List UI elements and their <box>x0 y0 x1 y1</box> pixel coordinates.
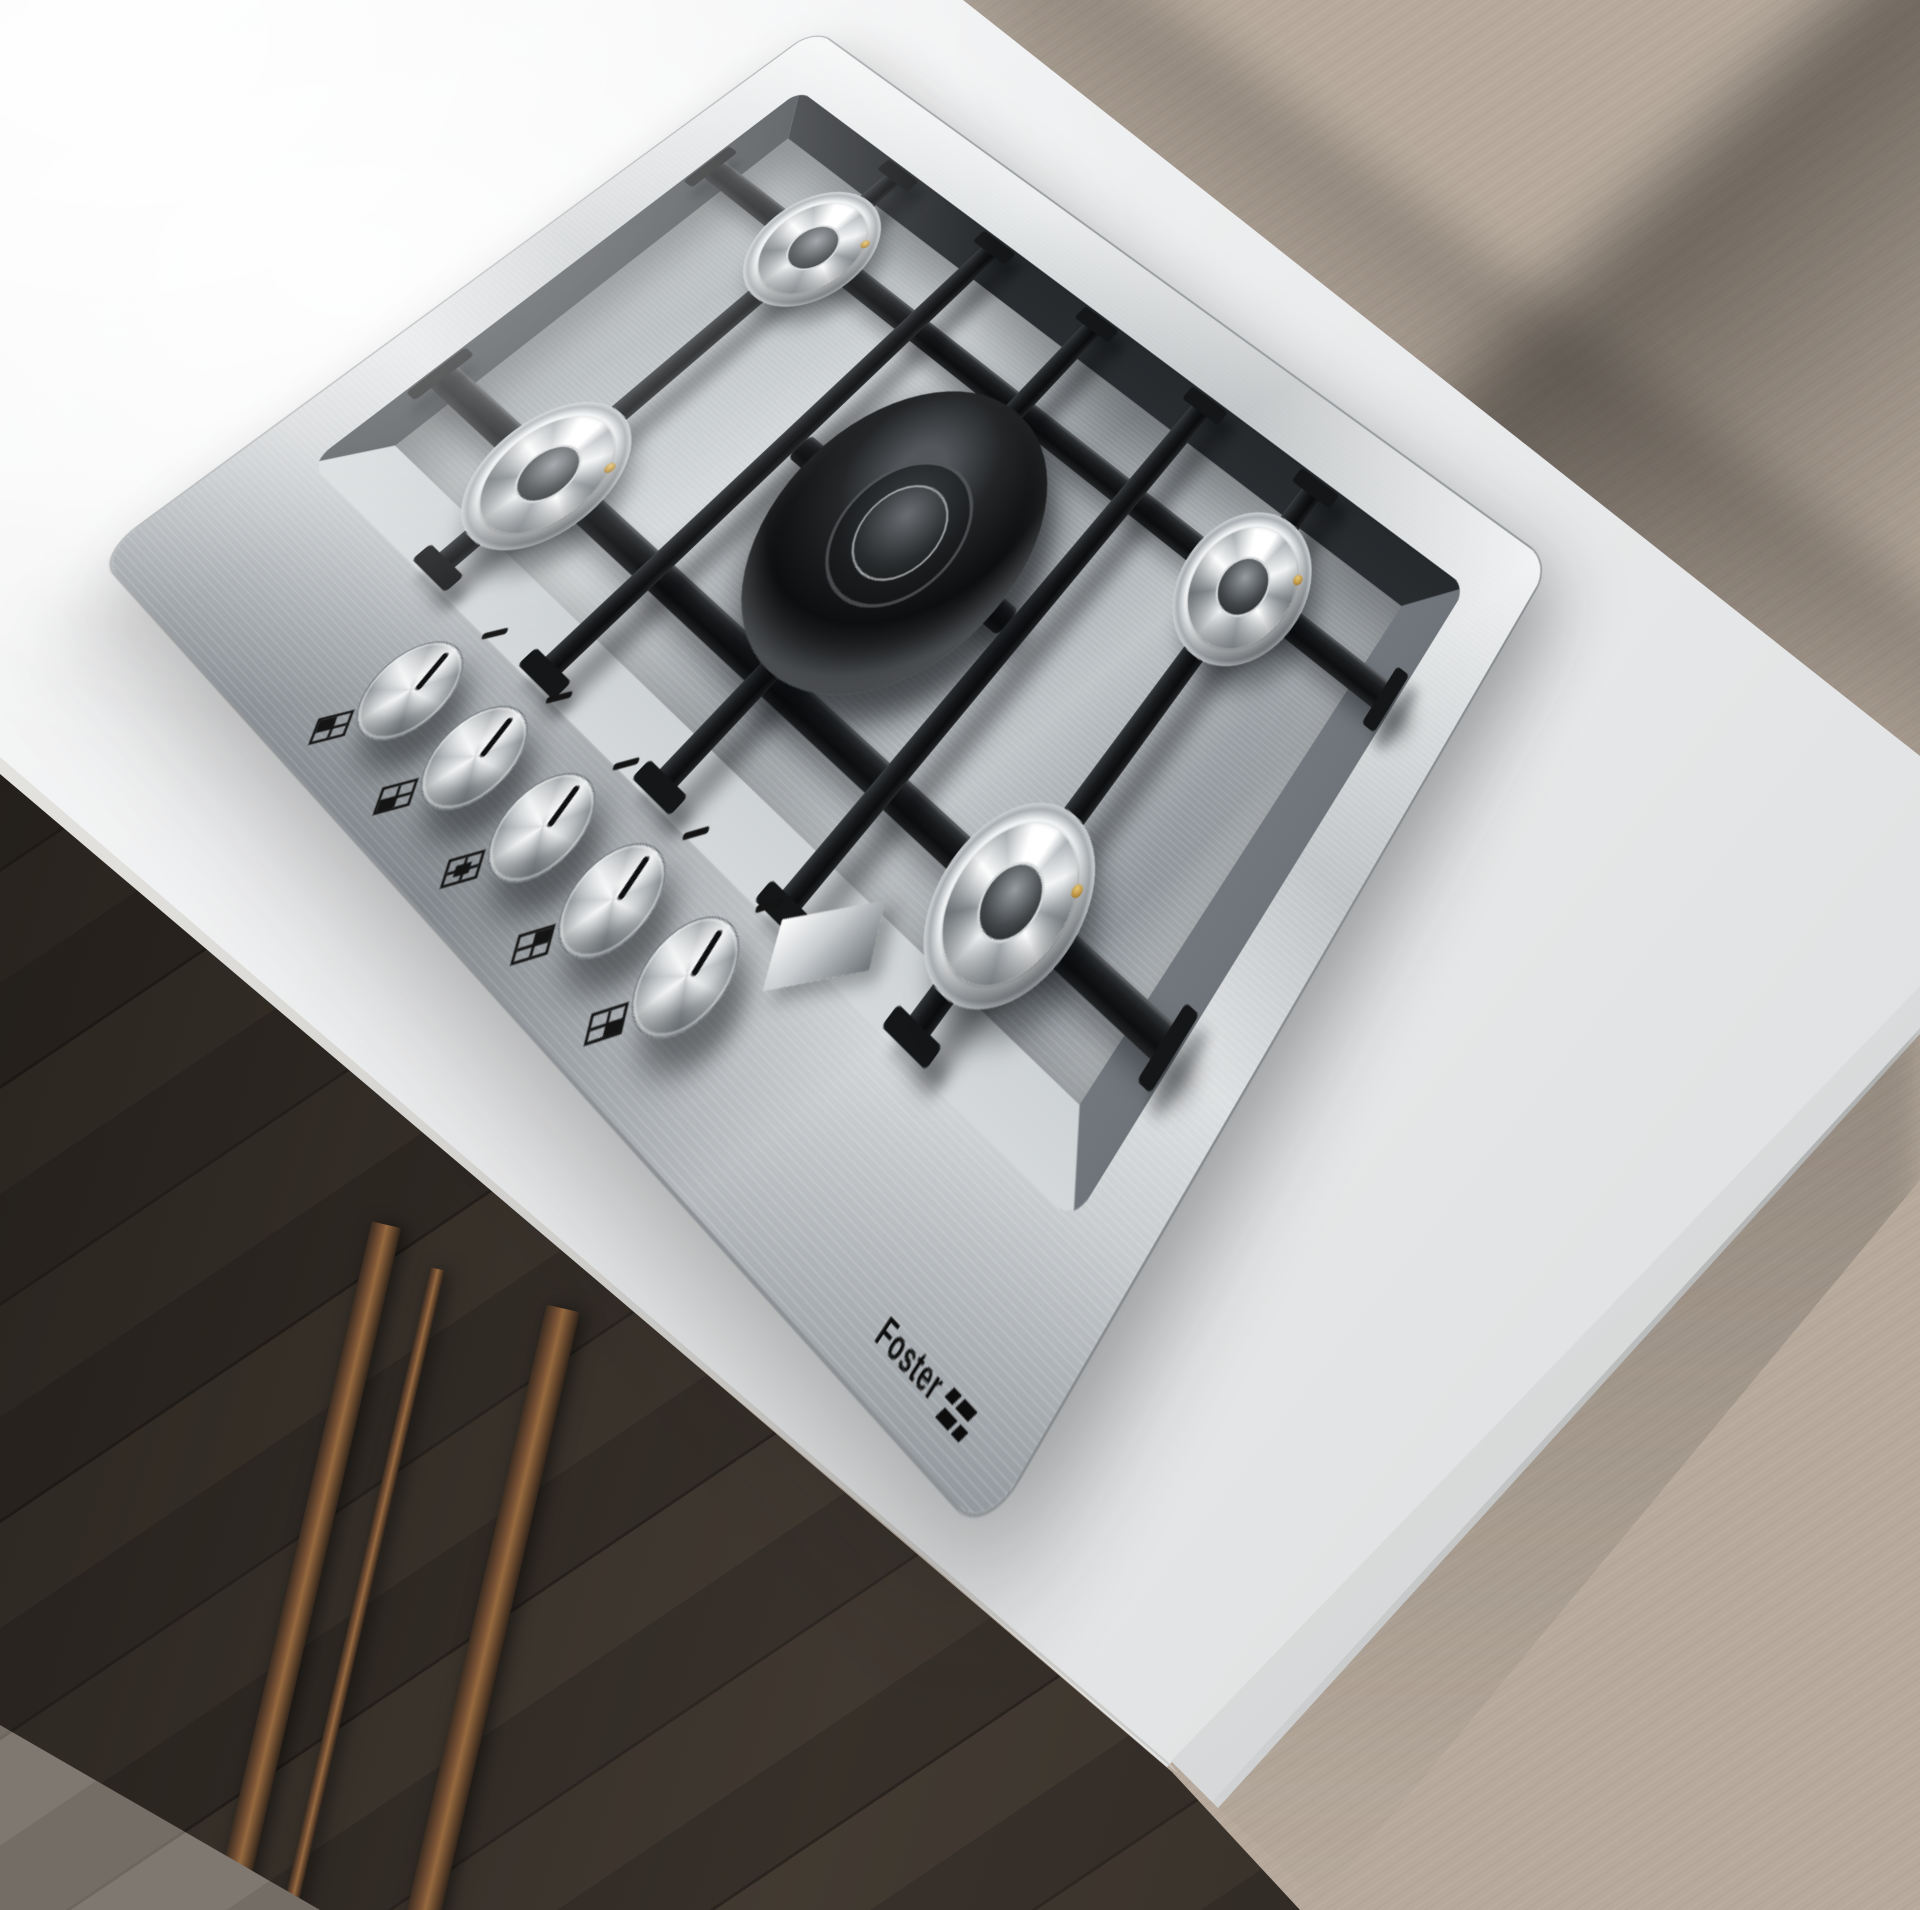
light-haze-overlay <box>0 0 1920 1910</box>
kitchen-scene: Foster <box>0 0 1920 1910</box>
